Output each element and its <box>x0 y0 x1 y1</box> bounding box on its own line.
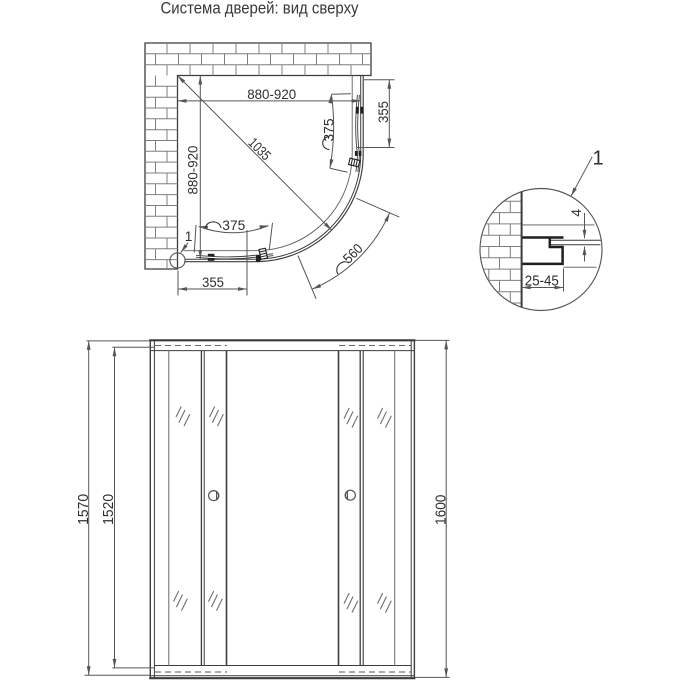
svg-text:1520: 1520 <box>100 494 117 525</box>
svg-text:1035: 1035 <box>245 134 274 163</box>
svg-text:880-920: 880-920 <box>247 86 296 102</box>
svg-text:1600: 1600 <box>433 495 450 526</box>
svg-text:Система дверей: вид сверху: Система дверей: вид сверху <box>161 0 360 17</box>
svg-text:355: 355 <box>202 274 224 290</box>
svg-text:1: 1 <box>185 229 193 244</box>
svg-text:375: 375 <box>222 217 245 233</box>
svg-text:355: 355 <box>375 101 391 123</box>
svg-text:1570: 1570 <box>75 494 92 525</box>
svg-text:4: 4 <box>568 209 584 217</box>
svg-text:25-45: 25-45 <box>525 273 559 290</box>
svg-text:1: 1 <box>593 148 604 170</box>
svg-text:880-920: 880-920 <box>185 145 201 194</box>
svg-text:375: 375 <box>321 118 337 141</box>
